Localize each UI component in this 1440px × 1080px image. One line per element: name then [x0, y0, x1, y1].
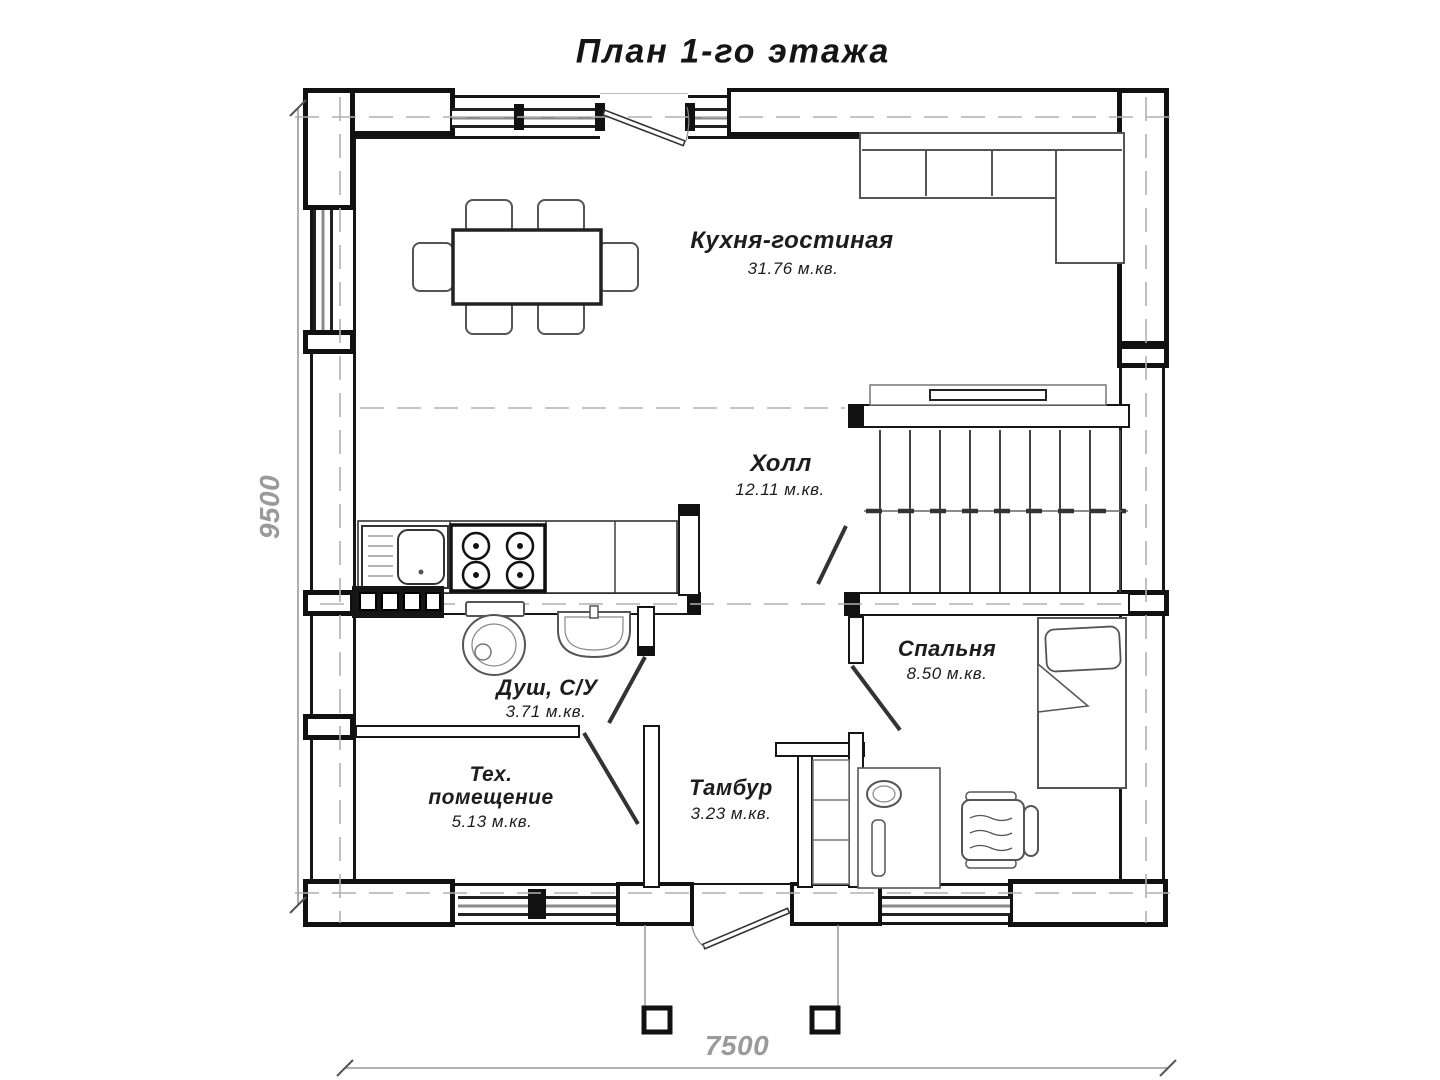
floor-plan: План 1-го этажа Кухня-гостиная 31.76 м.к…	[0, 0, 1440, 1080]
vestibule-right-wall	[797, 742, 813, 888]
chair	[413, 243, 453, 291]
dining-chairs	[413, 200, 638, 334]
stair-treads	[880, 430, 1120, 592]
room-area-vestibule: 3.23 м.кв.	[691, 804, 772, 824]
bathroom-door-leaf	[609, 657, 645, 723]
entrance-block-right	[790, 882, 882, 926]
window-top-1	[452, 108, 515, 128]
kitchen-sink	[362, 526, 448, 588]
chair	[538, 200, 584, 234]
stairs-wall-bottom	[844, 592, 1130, 616]
sofa	[860, 133, 1124, 263]
room-label-tech-room: Тех. помещение	[416, 763, 566, 809]
room-label-kitchen-living: Кухня-гостиная	[690, 227, 893, 255]
kitchen-wall-stub	[678, 504, 700, 596]
room-label-bedroom: Спальня	[898, 636, 996, 662]
window-bottom-1	[458, 896, 528, 916]
stairs-wall-bottom-cap	[844, 592, 860, 616]
window-bottom-3	[882, 896, 1010, 916]
corner-block-bottom-right	[1008, 879, 1168, 927]
desk	[858, 768, 940, 888]
room-area-tech-room: 5.13 м.кв.	[452, 812, 533, 832]
vestibule-shelf	[813, 760, 849, 884]
room-label-vestibule: Тамбур	[689, 775, 773, 801]
porch	[644, 925, 838, 1032]
pier-right-1	[1117, 344, 1169, 368]
wall-block-top-right	[727, 88, 1169, 136]
blanket-fold	[1038, 664, 1088, 712]
terrace-door-jamb-right	[685, 103, 695, 131]
window-top-2	[523, 108, 597, 128]
window-bottom-2	[546, 896, 616, 916]
chair	[466, 300, 512, 334]
office-chair	[962, 792, 1038, 868]
room-area-bedroom: 8.50 м.кв.	[907, 664, 988, 684]
pier-left-1	[303, 330, 355, 354]
room-area-kitchen-living: 31.76 м.кв.	[748, 259, 839, 279]
kitchen-wall-stub-cap	[678, 504, 700, 516]
corner-block-bottom-left	[303, 879, 455, 927]
bathroom-right-wall-cap	[637, 646, 655, 656]
kitchen-counter	[358, 521, 677, 593]
page-title: План 1-го этажа	[576, 33, 891, 72]
stairs-handrail	[930, 390, 1046, 400]
stairs-landing-rail	[870, 385, 1106, 405]
terrace-door-jamb-left	[595, 103, 605, 131]
porch-post	[644, 1008, 670, 1032]
entrance-block-left	[616, 882, 694, 926]
chair	[466, 200, 512, 234]
stove	[451, 525, 545, 591]
corner-block-top-left-v	[303, 88, 355, 210]
bed	[1038, 618, 1126, 788]
bedroom-door-leaf	[852, 666, 900, 730]
entrance-door-opening	[692, 885, 792, 925]
window-top-3	[695, 108, 727, 128]
window-pier-bottom-left	[528, 889, 546, 919]
chair	[598, 243, 638, 291]
bathroom-tech-wall	[355, 725, 580, 738]
dimension-label-bottom: 7500	[705, 1030, 769, 1062]
room-area-hall: 12.11 м.кв.	[735, 480, 825, 500]
stairs-wall-top-cap	[848, 404, 864, 428]
dining-set	[413, 200, 638, 334]
pier-left-2	[303, 590, 355, 616]
room-area-shower-wc: 3.71 м.кв.	[506, 702, 587, 722]
hall-door-leaf	[818, 526, 846, 584]
room-label-shower-wc: Душ, С/У	[496, 675, 597, 701]
tech-room-door-leaf	[584, 733, 638, 824]
room-label-hall: Холл	[750, 450, 812, 478]
pier-left-3	[303, 714, 355, 740]
bedroom-wall-lower	[848, 732, 864, 888]
corner-block-top-right-v	[1117, 88, 1169, 346]
bedroom-wall-upper	[848, 616, 864, 664]
dimension-label-left: 9500	[254, 475, 286, 539]
chair	[538, 300, 584, 334]
terrace-door-opening	[600, 93, 688, 141]
tech-vestibule-wall	[643, 725, 660, 888]
window-pier-top	[514, 104, 524, 130]
porch-post	[812, 1008, 838, 1032]
pillow	[1045, 626, 1121, 672]
window-left	[313, 210, 333, 330]
stairs-wall-top	[848, 404, 1130, 428]
dining-table	[453, 230, 601, 304]
